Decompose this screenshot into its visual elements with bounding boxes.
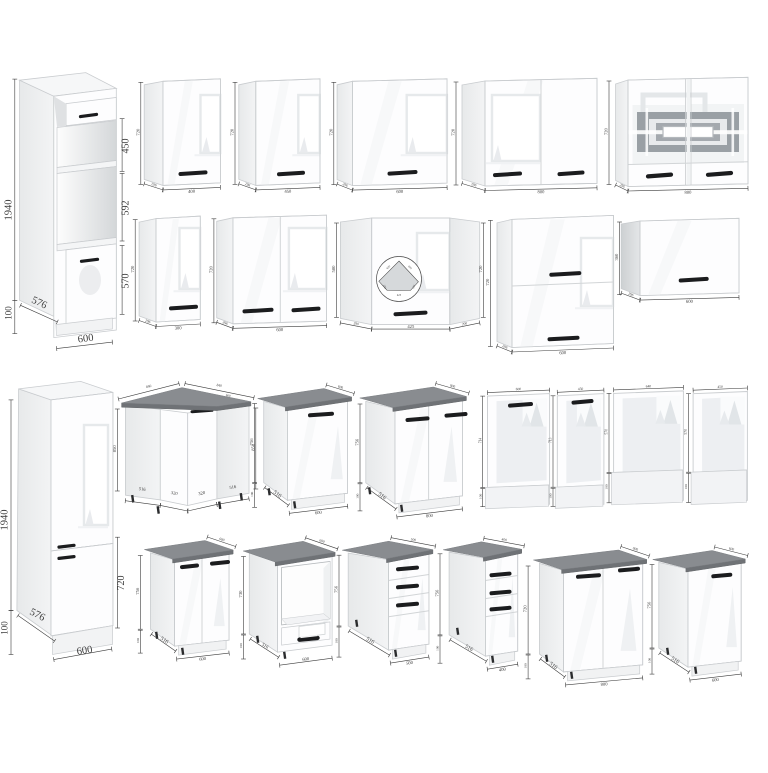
svg-text:100: 100 [0, 621, 10, 635]
svg-text:756: 756 [435, 589, 440, 597]
svg-text:570: 570 [605, 429, 609, 435]
svg-text:600: 600 [559, 350, 567, 355]
svg-text:720: 720 [523, 605, 528, 613]
svg-text:100: 100 [335, 638, 339, 643]
svg-text:714: 714 [478, 438, 482, 444]
svg-text:1940: 1940 [4, 200, 15, 221]
svg-text:850: 850 [112, 445, 117, 453]
svg-text:800: 800 [537, 189, 545, 194]
svg-text:400: 400 [188, 189, 196, 194]
svg-text:100: 100 [684, 484, 688, 489]
svg-text:800: 800 [684, 190, 692, 195]
svg-text:713: 713 [549, 437, 553, 443]
svg-text:756: 756 [334, 585, 339, 593]
svg-text:100: 100 [605, 484, 609, 489]
svg-text:100: 100 [549, 493, 553, 498]
svg-text:100: 100 [436, 645, 440, 650]
svg-text:756: 756 [135, 587, 140, 595]
svg-text:600: 600 [686, 299, 694, 304]
svg-text:100: 100 [136, 638, 140, 643]
svg-text:100: 100 [250, 491, 254, 496]
svg-text:600: 600 [396, 189, 404, 194]
svg-text:720: 720 [328, 128, 333, 136]
svg-text:720: 720 [485, 278, 490, 286]
svg-text:592: 592 [121, 201, 132, 216]
svg-text:450: 450 [717, 385, 723, 389]
svg-text:720: 720 [478, 265, 483, 273]
svg-text:450: 450 [121, 139, 132, 154]
svg-text:425: 425 [397, 294, 402, 297]
svg-text:600: 600 [516, 387, 522, 391]
svg-text:756: 756 [647, 601, 652, 609]
svg-text:600: 600 [315, 510, 323, 516]
svg-text:450: 450 [578, 387, 584, 391]
svg-text:756: 756 [249, 438, 254, 446]
svg-text:600: 600 [77, 333, 94, 346]
svg-text:100: 100 [524, 663, 528, 668]
svg-text:720: 720 [604, 127, 609, 135]
svg-text:600: 600 [276, 327, 284, 332]
svg-text:570: 570 [684, 429, 688, 435]
svg-text:425: 425 [407, 324, 415, 329]
svg-text:300: 300 [175, 325, 183, 330]
svg-text:100: 100 [648, 658, 652, 663]
svg-text:360: 360 [614, 253, 619, 261]
svg-text:720: 720 [116, 576, 127, 591]
svg-text:720: 720 [451, 128, 456, 136]
svg-text:800: 800 [600, 681, 608, 687]
svg-text:100: 100 [4, 306, 14, 320]
svg-text:730: 730 [238, 590, 243, 598]
svg-text:1940: 1940 [0, 510, 11, 531]
svg-text:720: 720 [230, 128, 235, 136]
svg-text:600: 600 [199, 656, 207, 662]
svg-text:100: 100 [239, 643, 243, 648]
svg-text:100: 100 [478, 494, 482, 499]
svg-text:570: 570 [121, 274, 132, 289]
svg-text:720: 720 [130, 265, 135, 273]
svg-text:450: 450 [284, 189, 292, 194]
svg-text:580: 580 [331, 265, 336, 273]
svg-text:720: 720 [209, 265, 214, 273]
svg-text:600: 600 [712, 677, 720, 683]
svg-text:756: 756 [355, 438, 360, 446]
svg-text:640: 640 [646, 384, 652, 388]
svg-text:720: 720 [135, 128, 140, 136]
svg-text:100: 100 [356, 493, 360, 498]
svg-text:800: 800 [426, 513, 434, 519]
